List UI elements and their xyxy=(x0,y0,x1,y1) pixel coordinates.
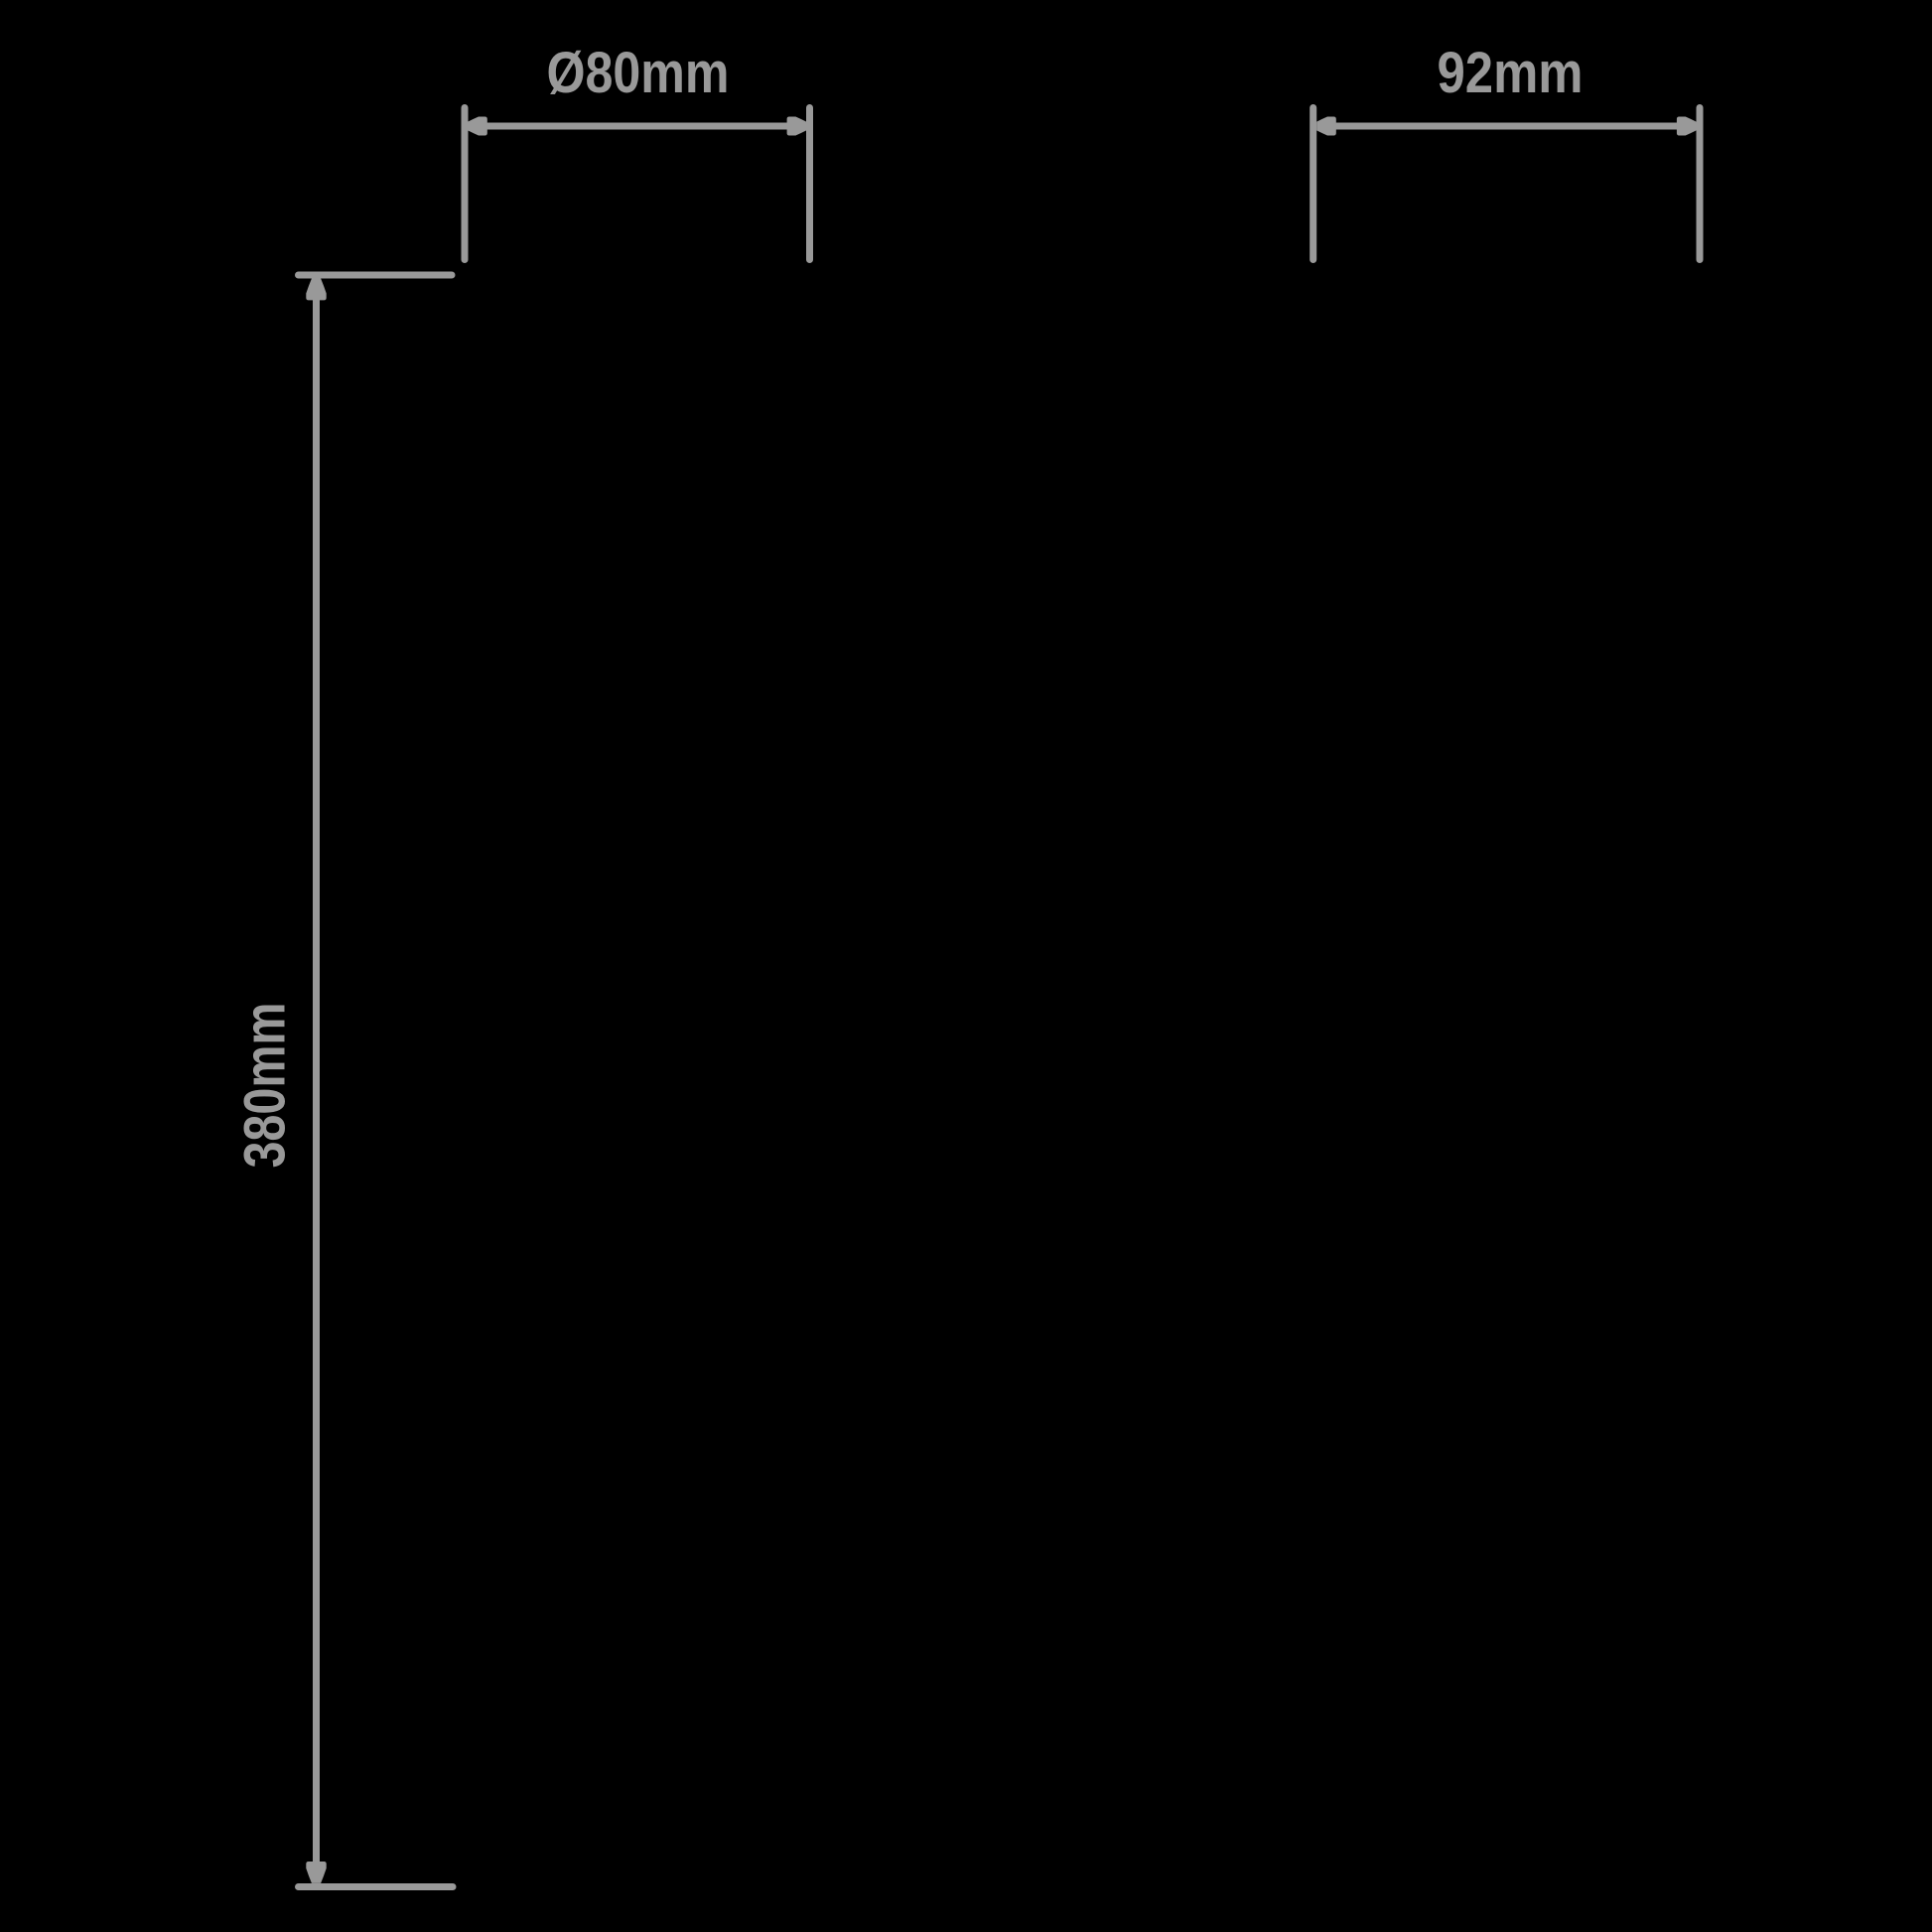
svg-text:Ø80mm: Ø80mm xyxy=(547,41,730,105)
svg-text:92mm: 92mm xyxy=(1438,41,1584,105)
svg-text:380mm: 380mm xyxy=(232,1003,297,1169)
